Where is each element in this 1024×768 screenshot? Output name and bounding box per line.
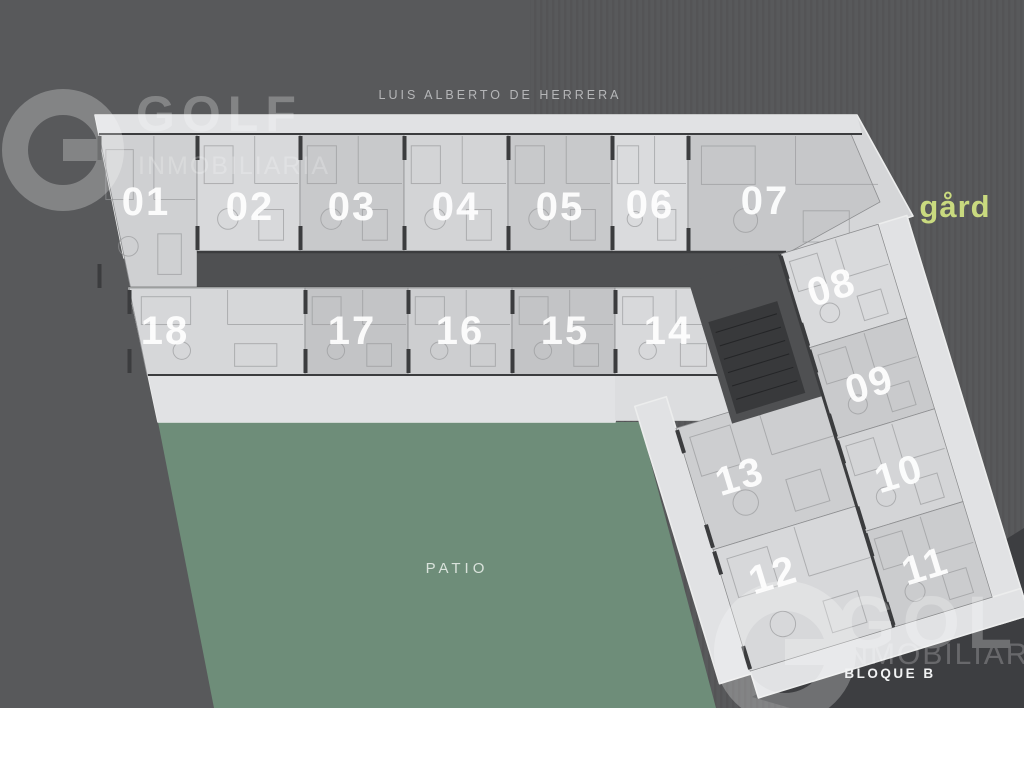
watermark-sub: INMOBILIARIA [138,152,330,180]
unit-number-15: 15 [541,309,590,353]
unit-number-17: 17 [328,309,377,353]
unit-number-02: 02 [226,185,275,229]
block-label: BLOQUE B [844,666,935,681]
unit-number-16: 16 [436,309,485,353]
unit-number-03: 03 [328,185,377,229]
unit-number-05: 05 [536,185,585,229]
unit-number-18: 18 [141,309,190,353]
brand-logo: gård [919,189,990,224]
unit-number-07: 07 [741,179,790,223]
unit-number-04: 04 [432,185,481,229]
bottom-white-band [0,708,1024,768]
unit-number-01: 01 [122,180,171,224]
street-label: LUIS ALBERTO DE HERRERA [379,88,622,102]
unit-number-14: 14 [644,309,693,353]
watermark-word: GOLF [136,86,303,142]
floorplan-image: PATIO 080910111312 [0,0,1024,768]
patio-label: PATIO [426,560,489,577]
row2-balcony [148,375,615,422]
unit-number-06: 06 [626,183,675,227]
